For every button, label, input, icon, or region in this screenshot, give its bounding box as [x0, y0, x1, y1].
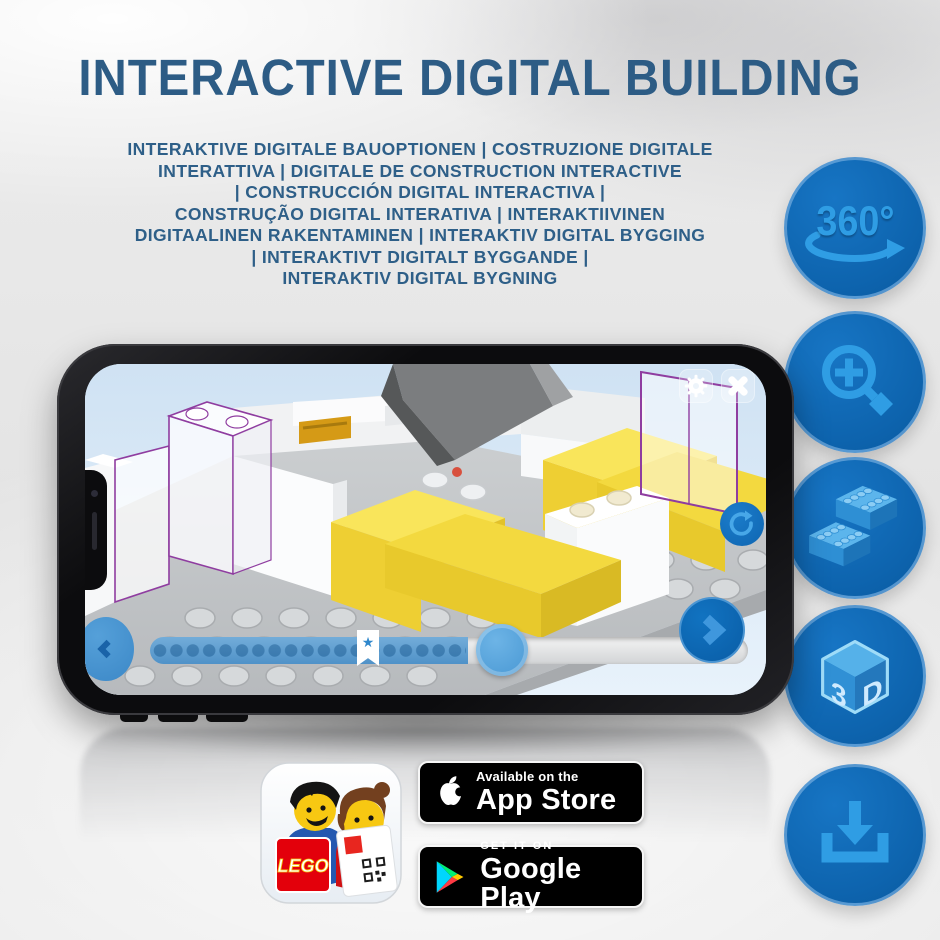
- next-step-button[interactable]: [679, 597, 745, 663]
- google-play-tagline: GET IT ON: [480, 841, 642, 852]
- 3d-cube-icon: 3 D: [808, 629, 902, 723]
- subtitle-line: INTERAKTIVE DIGITALE BAUOPTIONEN | COSTR…: [70, 139, 770, 161]
- subtitle-line: INTERATTIVA | DIGITALE DE CONSTRUCTION I…: [70, 161, 770, 183]
- download-icon: [809, 789, 901, 881]
- phone-notch: [85, 470, 107, 590]
- lego-app-icon[interactable]: LEGO: [260, 762, 402, 904]
- earpiece-speaker: [92, 512, 97, 550]
- chevron-left-icon: [93, 636, 119, 662]
- instruction-card: [336, 825, 398, 897]
- phone-screen: ★: [85, 364, 766, 695]
- 360-rotation-label: 360°: [816, 197, 894, 245]
- app-store-badge[interactable]: Available on the App Store: [418, 761, 644, 824]
- feature-3d-badge: 3 D: [784, 605, 926, 747]
- rotate-icon: [727, 509, 757, 539]
- chevron-right-icon: [693, 611, 731, 649]
- zoom-magnifier-icon: [809, 336, 901, 428]
- feature-zoom-badge: [784, 311, 926, 453]
- rotate-model-button[interactable]: [720, 502, 764, 546]
- app-store-name: App Store: [476, 786, 616, 815]
- app-store-tagline: Available on the: [476, 770, 616, 783]
- front-camera: [91, 490, 98, 497]
- subtitle-line: | INTERAKTIVT DIGITALT BYGGANDE |: [70, 247, 770, 269]
- apple-icon: [434, 775, 464, 811]
- promo-canvas: INTERACTIVE DIGITAL BUILDING INTERAKTIVE…: [0, 0, 940, 940]
- subtitle-line: DIGITAALINEN RAKENTAMINEN | INTERAKTIV D…: [70, 225, 770, 247]
- lego-logo: LEGO: [276, 838, 330, 892]
- page-title: INTERACTIVE DIGITAL BUILDING: [33, 48, 907, 107]
- close-icon: [727, 375, 749, 397]
- close-button[interactable]: [721, 369, 755, 403]
- gear-icon: [683, 373, 709, 399]
- feature-bricks-badge: [784, 457, 926, 599]
- settings-button[interactable]: [679, 369, 713, 403]
- subtitle-line: INTERAKTIV DIGITAL BYGNING: [70, 268, 770, 290]
- google-play-badge[interactable]: GET IT ON Google Play: [418, 845, 644, 908]
- feature-download-badge: [784, 764, 926, 906]
- google-play-icon: [434, 857, 468, 897]
- feature-360-badge: 360°: [784, 157, 926, 299]
- google-play-name: Google Play: [480, 855, 642, 913]
- subtitle-line: | CONSTRUCCIÓN DIGITAL INTERACTIVA |: [70, 182, 770, 204]
- build-progress-slider[interactable]: ★: [150, 637, 748, 664]
- lego-bricks-icon: [807, 484, 903, 572]
- white-stud: [460, 484, 486, 500]
- subtitle-block: INTERAKTIVE DIGITALE BAUOPTIONEN | COSTR…: [70, 139, 770, 290]
- slider-handle[interactable]: [476, 624, 528, 676]
- white-stud: [422, 472, 448, 488]
- red-piece-accent: [452, 467, 462, 477]
- phone-mockup: ★: [57, 344, 794, 715]
- svg-text:LEGO: LEGO: [277, 856, 328, 876]
- slider-progress-fill: [150, 637, 468, 664]
- subtitle-line: CONSTRUÇÃO DIGITAL INTERATIVA | INTERAKT…: [70, 204, 770, 226]
